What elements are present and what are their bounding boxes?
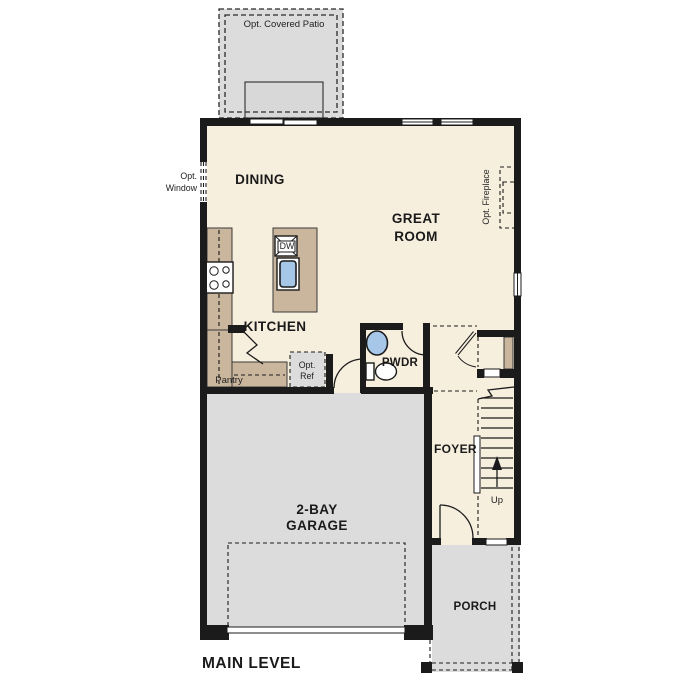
- pwdr-label: PWDR: [382, 357, 419, 369]
- foyer-floor: [428, 393, 517, 545]
- porch-step: [486, 539, 507, 545]
- svg-text:Window: Window: [166, 183, 198, 193]
- island-sink: [277, 258, 299, 290]
- sliding-door: [250, 119, 317, 125]
- porch-post-right: [512, 662, 523, 673]
- opt-window-label: Opt. Window: [166, 171, 198, 193]
- garage-door: [227, 627, 405, 633]
- right-wall-window: [514, 273, 521, 296]
- porch-post-left: [421, 662, 432, 673]
- porch-label: PORCH: [453, 601, 496, 613]
- dining-label: DINING: [235, 172, 285, 187]
- cooktop: [206, 262, 233, 293]
- pwdr-sink: [367, 331, 388, 355]
- svg-text:GARAGE: GARAGE: [286, 518, 348, 533]
- floor-plan-page: Opt. Covered Patio Opt. Window DINING GR…: [0, 0, 687, 687]
- foyer-label: FOYER: [434, 442, 477, 456]
- floor-plan-svg: Opt. Covered Patio Opt. Window DINING GR…: [0, 0, 687, 687]
- opt-fireplace-label: Opt. Fireplace: [481, 169, 491, 224]
- stairs-up-label: Up: [491, 495, 503, 506]
- pantry-label: Pantry: [215, 375, 243, 386]
- svg-text:2-BAY: 2-BAY: [296, 502, 337, 517]
- opt-covered-patio-label: Opt. Covered Patio: [244, 19, 325, 30]
- dishwasher-label: DW: [280, 241, 295, 251]
- main-level-title: MAIN LEVEL: [202, 655, 301, 672]
- svg-text:Ref: Ref: [300, 371, 314, 381]
- kitchen-label: KITCHEN: [244, 319, 307, 334]
- svg-text:Opt.: Opt.: [299, 360, 316, 370]
- great-room-window-2: [441, 119, 473, 125]
- svg-text:GREAT: GREAT: [392, 211, 441, 226]
- svg-text:Opt.: Opt.: [180, 171, 197, 181]
- opt-window: [200, 162, 207, 202]
- opt-ref-label: Opt. Ref: [299, 360, 316, 381]
- closet-shelf: [504, 337, 513, 369]
- great-room-window-1: [402, 119, 433, 125]
- closet-opening: [484, 369, 500, 377]
- svg-text:ROOM: ROOM: [394, 229, 438, 244]
